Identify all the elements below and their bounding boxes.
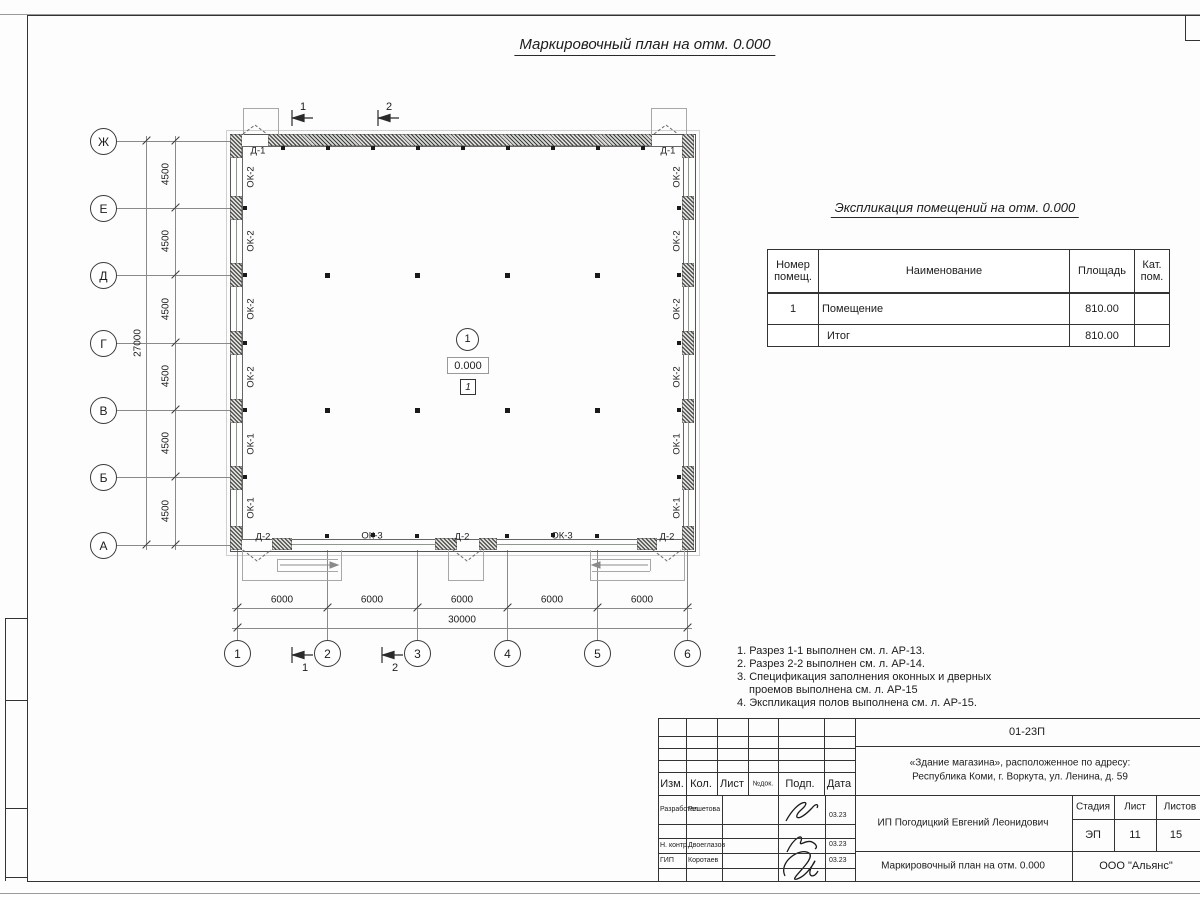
ramp-arrow-head [330, 562, 338, 568]
stamp-line [825, 795, 826, 881]
stamp-line [717, 718, 718, 795]
section-arrow-head [383, 652, 394, 659]
table-title: Экспликация помещений на отм. 0.000 [831, 200, 1079, 218]
door-swing [243, 550, 271, 561]
drawing-sheet: Маркировочный план на отм. 0.000 Ж Е Д Г… [0, 0, 1200, 900]
note-line: 2. Разрез 2-2 выполнен см. л. АР-14. [737, 658, 925, 670]
col-header-name: Наименование [819, 250, 1070, 294]
stamp-col-kol: Кол. [690, 778, 712, 790]
stamp-line [778, 718, 779, 795]
stamp-date: 03.23 [829, 857, 847, 864]
sheet-label: Лист [1124, 802, 1146, 813]
section-arrow-head [293, 652, 304, 659]
stamp-line [748, 718, 749, 795]
stamp-line [658, 736, 855, 737]
stamp-col-izm: Изм. [660, 778, 684, 790]
section-arrow-head [379, 115, 390, 122]
stamp-line [1114, 795, 1115, 851]
stamp-line [658, 760, 855, 761]
signature [786, 802, 818, 821]
object-address-line1: «Здание магазина», расположенное по адре… [910, 758, 1131, 769]
drawing-name: Маркировочный план на отм. 0.000 [881, 861, 1045, 872]
company-name: ООО "Альянс" [1099, 860, 1173, 872]
client-name: ИП Погодицкий Евгений Леонидович [878, 818, 1049, 829]
cell-room-area: 810.00 [1070, 293, 1135, 325]
stamp-role: ГИП [660, 857, 674, 864]
stamp-col-data: Дата [827, 778, 851, 790]
col-header-area: Площадь [1070, 250, 1135, 294]
stamp-line [658, 718, 1200, 719]
ramp-arrow-head [592, 562, 600, 568]
col-header-cat: Кат. пом. [1135, 250, 1170, 294]
stamp-col-ndok: №док. [753, 781, 774, 788]
sheets-label: Листов [1164, 802, 1197, 813]
stamp-line [722, 795, 723, 881]
stamp-line [1072, 819, 1200, 820]
stamp-line [658, 718, 659, 881]
stamp-line [778, 795, 779, 881]
note-line: проемов выполнена см. л. АР-15 [749, 684, 918, 696]
stamp-name: Двоеглазов [688, 842, 725, 849]
sheets-value: 15 [1170, 829, 1182, 841]
table-header-row: Номер помещ. Наименование Площадь Кат. п… [768, 250, 1170, 294]
signature [784, 852, 818, 880]
stamp-line [855, 851, 1200, 852]
cell-room-cat [1135, 293, 1170, 325]
stamp-name: Коротаев [688, 857, 718, 864]
table-row: 1 Помещение 810.00 [768, 293, 1170, 325]
cell-room-number [768, 325, 819, 347]
note-line: 1. Разрез 1-1 выполнен см. л. АР-13. [737, 645, 925, 657]
stamp-line [855, 795, 1200, 796]
door-swing [653, 550, 681, 561]
stamp-line [855, 718, 856, 881]
stage-label: Стадия [1076, 802, 1110, 813]
stamp-line [1072, 795, 1073, 881]
door-swing [243, 125, 267, 134]
col-header-number: Номер помещ. [768, 250, 819, 294]
cell-room-number: 1 [768, 293, 819, 325]
section-arrow-head [293, 115, 304, 122]
cell-room-cat [1135, 325, 1170, 347]
stamp-line [824, 718, 825, 795]
note-line: 3. Спецификация заполнения оконных и две… [737, 671, 991, 683]
signature [787, 837, 816, 852]
stamp-line [855, 746, 1200, 747]
door-swing [453, 550, 481, 561]
stamp-line [658, 748, 855, 749]
doc-number: 01-23П [1009, 726, 1045, 738]
stage-value: ЭП [1085, 829, 1101, 841]
cell-room-area: 810.00 [1070, 325, 1135, 347]
rooms-table: Номер помещ. Наименование Площадь Кат. п… [767, 249, 1170, 347]
stamp-line [686, 718, 687, 795]
stamp-date: 03.23 [829, 841, 847, 848]
table-row: Итог 810.00 [768, 325, 1170, 347]
cell-room-name: Итог [819, 325, 1070, 347]
cell-room-name: Помещение [819, 293, 1070, 325]
sheet-value: 11 [1129, 829, 1140, 841]
stamp-name: Решетова [688, 806, 720, 813]
note-line: 4. Экспликация полов выполнена см. л. АР… [737, 697, 977, 709]
stamp-line [658, 772, 855, 773]
door-swing [654, 125, 678, 134]
object-address-line2: Республика Коми, г. Воркута, ул. Ленина,… [912, 772, 1128, 783]
stamp-col-podp: Подп. [785, 778, 814, 790]
stamp-date: 03.23 [829, 812, 847, 819]
stamp-role: Н. контр. [660, 842, 689, 849]
stamp-line [1156, 795, 1157, 851]
stamp-col-list: Лист [720, 778, 744, 790]
